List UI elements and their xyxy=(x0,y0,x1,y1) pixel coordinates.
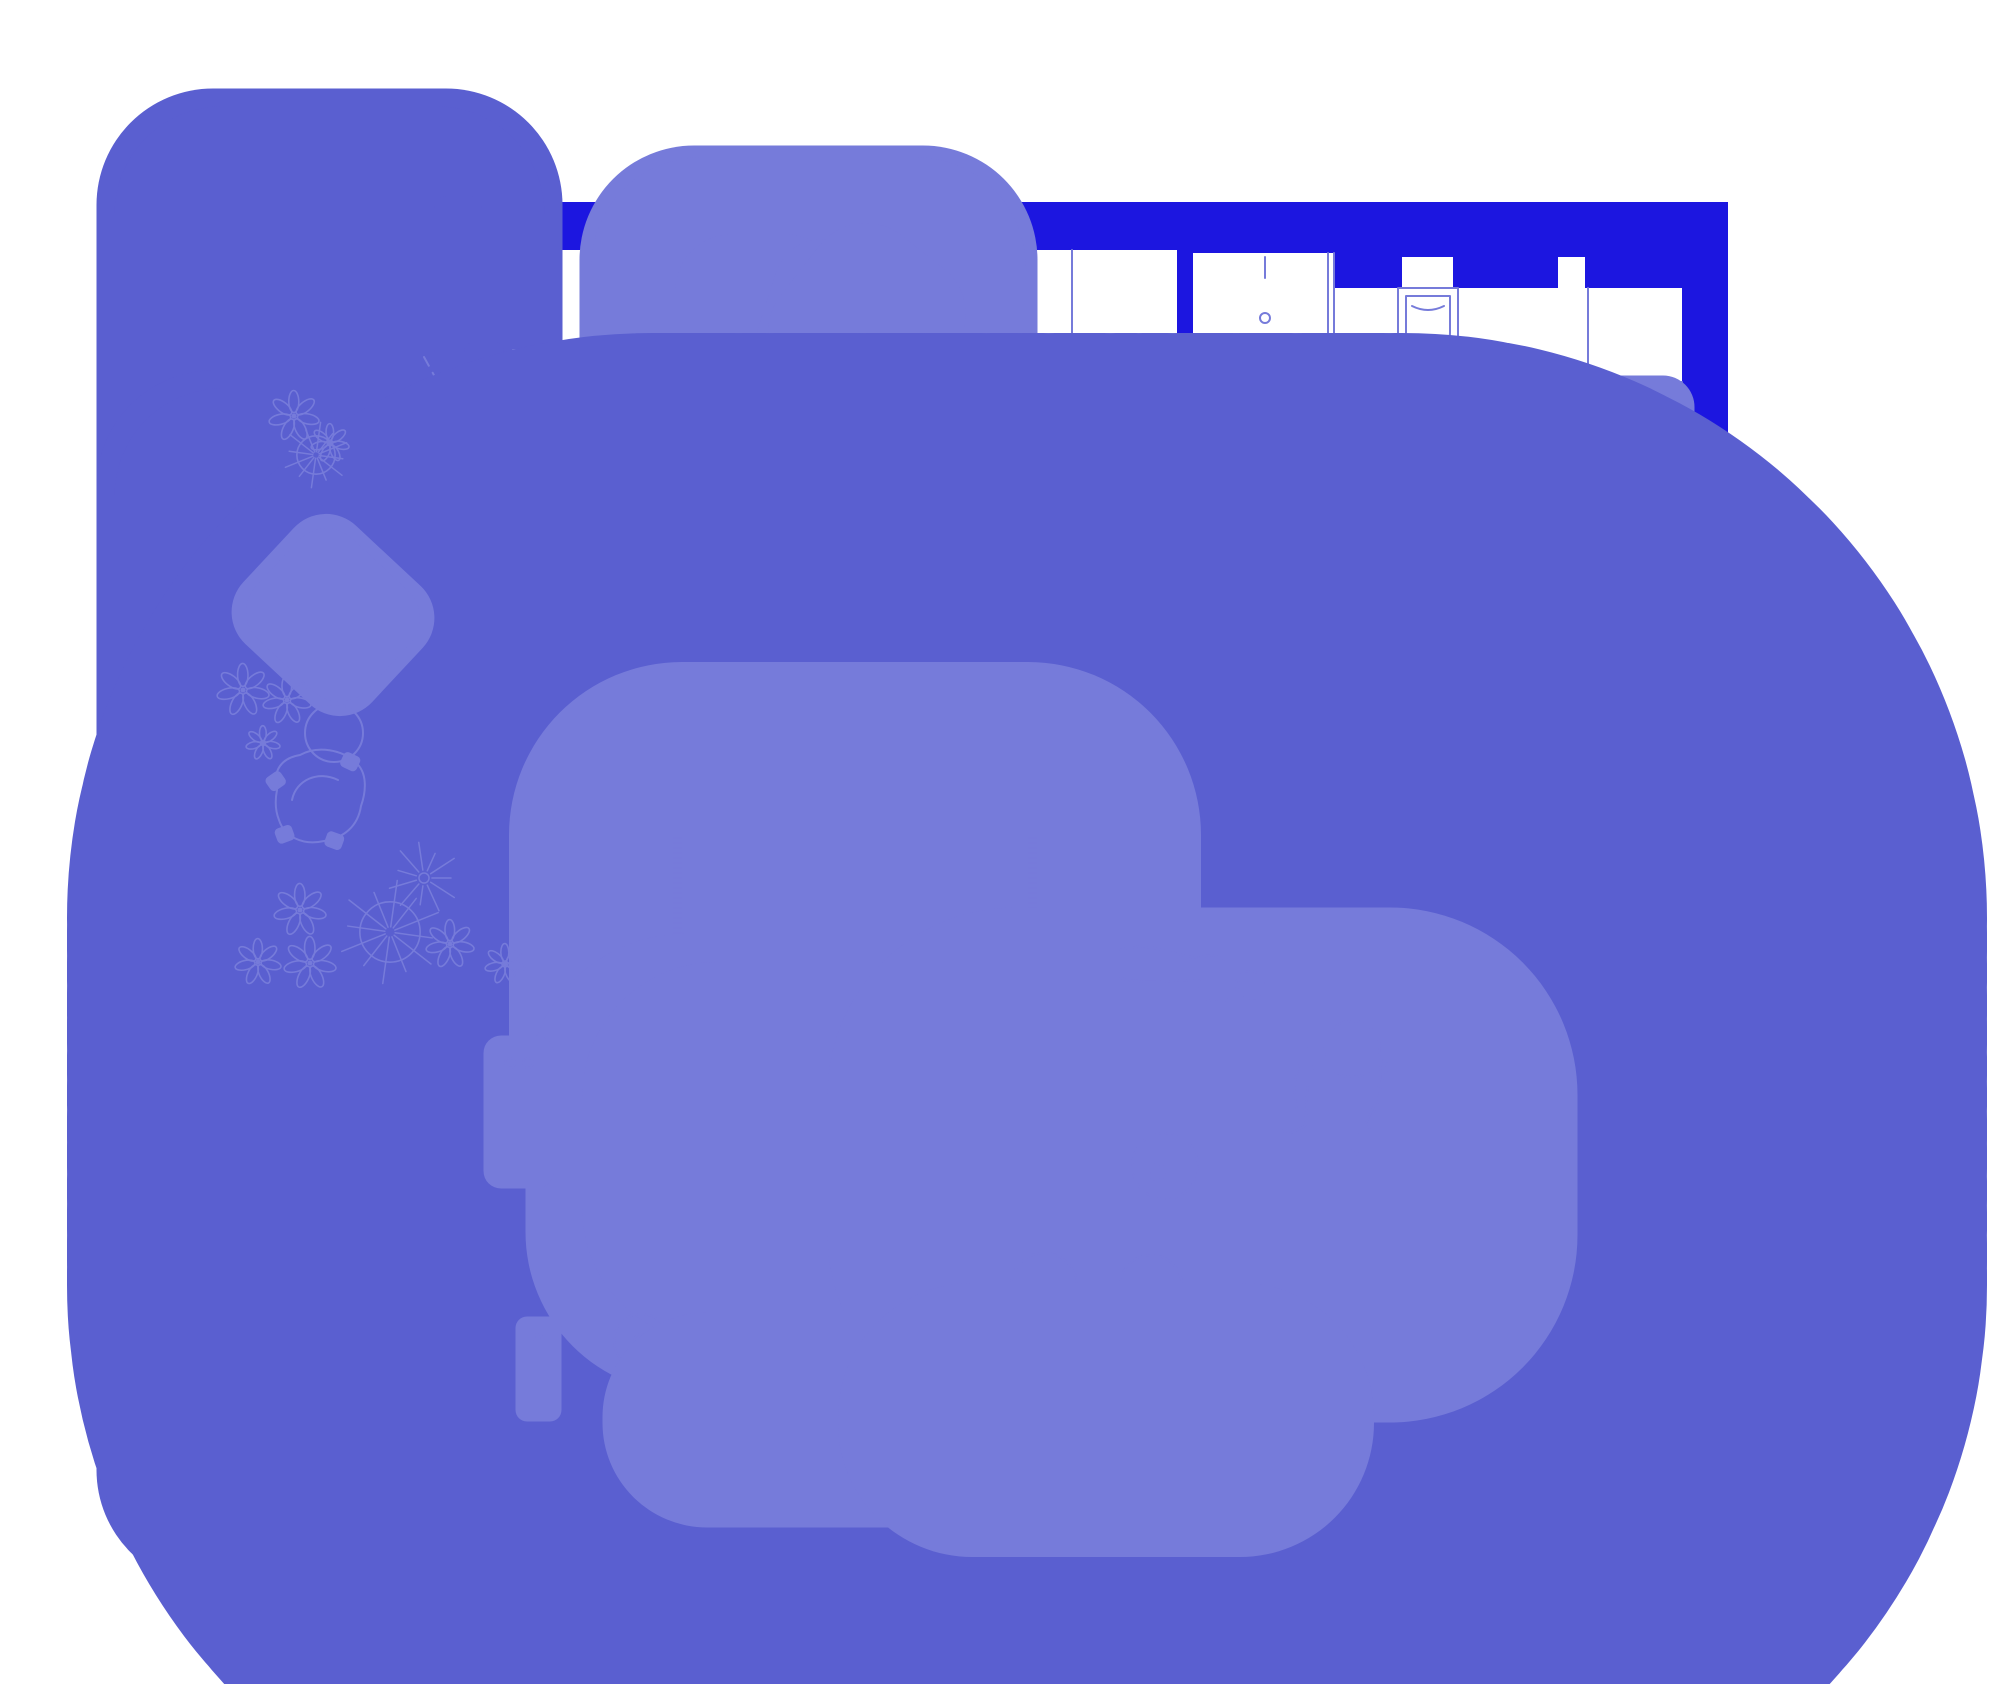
window-top-left xyxy=(446,208,470,350)
armchair-foot xyxy=(329,836,340,846)
threshold xyxy=(972,1417,1240,1423)
shower-drain xyxy=(1260,313,1270,323)
lounge-chair-inner xyxy=(284,566,382,663)
armchair-foot xyxy=(279,829,290,839)
niche-cistern xyxy=(1402,257,1453,288)
armchair-foot xyxy=(345,757,356,767)
armchair-foot xyxy=(270,776,281,787)
niche-small xyxy=(1558,257,1585,288)
toilet-seat-line xyxy=(1412,306,1444,310)
floor-plan-svg xyxy=(0,0,2000,1684)
wall-toilet-strip xyxy=(1334,253,1728,288)
wall-top-right xyxy=(1193,202,1728,253)
island-counter xyxy=(1015,1095,1390,1235)
door-shelf xyxy=(527,1328,550,1410)
floor-plan-page xyxy=(0,0,2000,1684)
living-room xyxy=(501,813,1507,1423)
